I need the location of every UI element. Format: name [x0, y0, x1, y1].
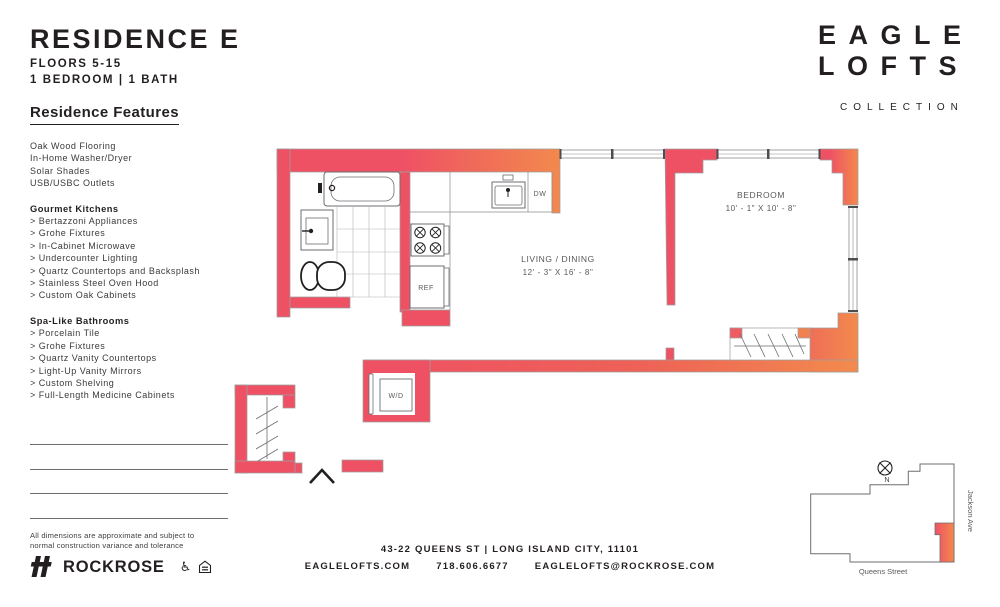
feature-item: Solar Shades	[30, 165, 260, 177]
bath-vanity	[301, 210, 333, 250]
brand-logo: EAGLE LOFTS	[818, 20, 988, 82]
rockrose-mark-icon	[28, 556, 54, 578]
living-dims: 12' - 3" X 16' - 8"	[523, 268, 594, 277]
entry-closet-rod	[256, 397, 278, 461]
room-labels: LIVING / DINING 12' - 3" X 16' - 8" BEDR…	[521, 190, 796, 277]
feature-item: In-Home Washer/Dryer	[30, 152, 260, 164]
windows	[560, 150, 857, 311]
floor-plan-drawing: W/D	[230, 128, 885, 496]
kitchen-features-heading: Gourmet Kitchens	[30, 203, 260, 215]
feature-item: > Light-Up Vanity Mirrors	[30, 365, 260, 377]
bedroom-dims: 10' - 1" X 10' - 8"	[726, 204, 797, 213]
dw-label: DW	[534, 191, 547, 198]
wd-label: W/D	[388, 393, 403, 400]
closet-jamb-left	[730, 328, 742, 338]
bedroom-label: BEDROOM	[737, 190, 785, 200]
feature-item: > Bertazzoni Appliances	[30, 215, 260, 227]
feature-item: > Stainless Steel Oven Hood	[30, 277, 260, 289]
tub-faucet-icon	[318, 183, 322, 193]
feature-item: > Quartz Vanity Countertops	[30, 352, 260, 364]
page-title: RESIDENCE E	[30, 24, 241, 55]
building-outline	[811, 464, 954, 562]
wd-door	[369, 374, 373, 414]
ref-label: REF	[418, 285, 434, 292]
features-list: Oak Wood Flooring In-Home Washer/Dryer S…	[30, 140, 260, 402]
closet-jamb-right	[798, 328, 810, 338]
floor-plan: W/D	[230, 128, 885, 501]
compass-north-label: N	[884, 477, 889, 484]
refrigerator: REF	[410, 266, 449, 308]
equal-housing-icon	[198, 560, 212, 574]
feature-item: > Custom Oak Cabinets	[30, 289, 260, 301]
bathtub	[318, 172, 400, 206]
developer-logo: ROCKROSE ♿	[28, 556, 212, 578]
website: EAGLELOFTS.COM	[305, 561, 410, 572]
features-heading: Residence Features	[30, 104, 179, 125]
bath-tile-grid	[337, 207, 400, 297]
living-label: LIVING / DINING	[521, 254, 595, 264]
footer-contact: 43-22 QUEENS ST | LONG ISLAND CITY, 1110…	[290, 544, 730, 572]
feature-item: > Custom Shelving	[30, 377, 260, 389]
wheelchair-accessible-icon: ♿	[180, 561, 192, 574]
street-label-jackson: Jackson Ave	[966, 490, 975, 532]
wall-entry-closet	[235, 385, 302, 473]
key-map-drawing: N Jackson Ave Queens Street	[805, 448, 977, 586]
feature-item: > Quartz Countertops and Backsplash	[30, 265, 260, 277]
note-line	[30, 518, 228, 519]
note-line	[30, 444, 228, 445]
feature-item: > Porcelain Tile	[30, 327, 260, 339]
wall-bottom	[365, 360, 858, 372]
phone: 718.606.6677	[436, 561, 509, 572]
feature-item: > Full-Length Medicine Cabinets	[30, 389, 260, 401]
note-line	[30, 469, 228, 470]
feature-item: > In-Cabinet Microwave	[30, 240, 260, 252]
wall-partition	[665, 149, 717, 305]
stove	[411, 224, 449, 256]
brand-line1: EAGLE	[818, 20, 988, 51]
brand-line2: LOFTS	[818, 51, 988, 82]
wall-bath-kitchen	[400, 172, 410, 312]
feature-item: > Grohe Fixtures	[30, 227, 260, 239]
feature-item: > Undercounter Lighting	[30, 252, 260, 264]
window-center-lines	[560, 154, 853, 311]
window-mullions	[560, 149, 859, 312]
wall-bath-bottom	[290, 297, 350, 308]
bath-features-heading: Spa-Like Bathrooms	[30, 315, 260, 327]
wall-entry	[342, 460, 383, 472]
flyer-page: RESIDENCE E FLOORS 5-15 1 BEDROOM | 1 BA…	[0, 0, 1000, 607]
kitchen-sink	[492, 175, 525, 208]
bed-bath-subtitle: 1 BEDROOM | 1 BATH	[30, 74, 179, 86]
rockrose-wordmark: ROCKROSE	[63, 558, 165, 577]
feature-item: USB/USBC Outlets	[30, 177, 260, 189]
feature-item: Oak Wood Flooring	[30, 140, 260, 152]
email: EAGLELOFTS@ROCKROSE.COM	[535, 561, 715, 572]
compass-icon	[878, 461, 892, 475]
brand-tagline: COLLECTION	[840, 102, 964, 113]
kitchen-faucet-icon	[506, 188, 510, 192]
key-map: N Jackson Ave Queens Street	[805, 448, 977, 591]
street-label-queens: Queens Street	[859, 567, 908, 576]
sink-faucet-icon	[309, 229, 313, 233]
wall-corner-topright	[820, 149, 858, 205]
entry-arrow-icon	[310, 470, 334, 483]
toilet	[301, 262, 345, 290]
wall-kitchen-stub	[402, 310, 450, 326]
feature-item: > Grohe Fixtures	[30, 340, 260, 352]
note-line	[30, 493, 228, 494]
floors-subtitle: FLOORS 5-15	[30, 58, 122, 70]
address: 43-22 QUEENS ST | LONG ISLAND CITY, 1110…	[290, 544, 730, 555]
wall-left	[277, 149, 290, 317]
disclaimer: All dimensions are approximate and subje…	[30, 531, 194, 550]
